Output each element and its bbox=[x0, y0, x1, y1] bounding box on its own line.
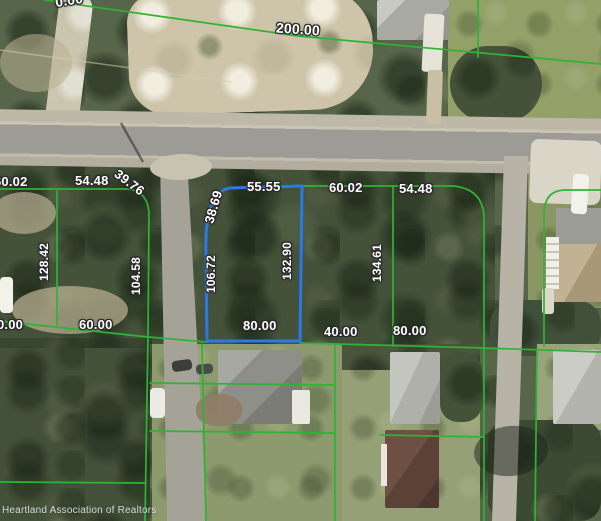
parcel-line bbox=[544, 190, 601, 346]
dirt-trail-line bbox=[0, 50, 232, 82]
parcel-line bbox=[300, 343, 601, 352]
dimension-label: 55.55 bbox=[247, 180, 281, 194]
dimension-label: 80.00 bbox=[243, 319, 277, 333]
parcel-lines-layer bbox=[0, 0, 601, 521]
watermark-text: Heartland Association of Realtors bbox=[2, 505, 156, 516]
dimension-label: 60.02 bbox=[0, 175, 28, 189]
dimension-label: 0.00 bbox=[0, 318, 23, 332]
parcel-line bbox=[150, 383, 335, 385]
parcel-line bbox=[0, 189, 149, 521]
dimension-label: 60.02 bbox=[329, 181, 363, 195]
dimension-label: 132.90 bbox=[280, 242, 294, 280]
dimension-label: 40.00 bbox=[324, 325, 358, 339]
parcel-line bbox=[380, 435, 484, 437]
dimension-label: 60.00 bbox=[79, 318, 113, 332]
dimension-label: 54.48 bbox=[75, 174, 109, 188]
parcel-line bbox=[45, 0, 601, 64]
map-viewport[interactable]: 0.00 200.00 60.02 54.48 39.76 38.69 55.5… bbox=[0, 0, 601, 521]
dimension-label: 104.58 bbox=[129, 257, 143, 295]
parcel-line bbox=[535, 349, 537, 521]
parcel-line bbox=[202, 344, 206, 521]
dimension-label: 134.61 bbox=[370, 244, 384, 282]
pole-shadow bbox=[121, 123, 143, 162]
dimension-label: 54.48 bbox=[399, 182, 433, 196]
dimension-label: 128.42 bbox=[37, 243, 51, 281]
dimension-label: 106.72 bbox=[204, 255, 218, 293]
dimension-label: 200.00 bbox=[276, 20, 321, 37]
dimension-label: 80.00 bbox=[393, 324, 427, 338]
parcel-line bbox=[150, 431, 335, 433]
parcel-line bbox=[0, 482, 145, 483]
